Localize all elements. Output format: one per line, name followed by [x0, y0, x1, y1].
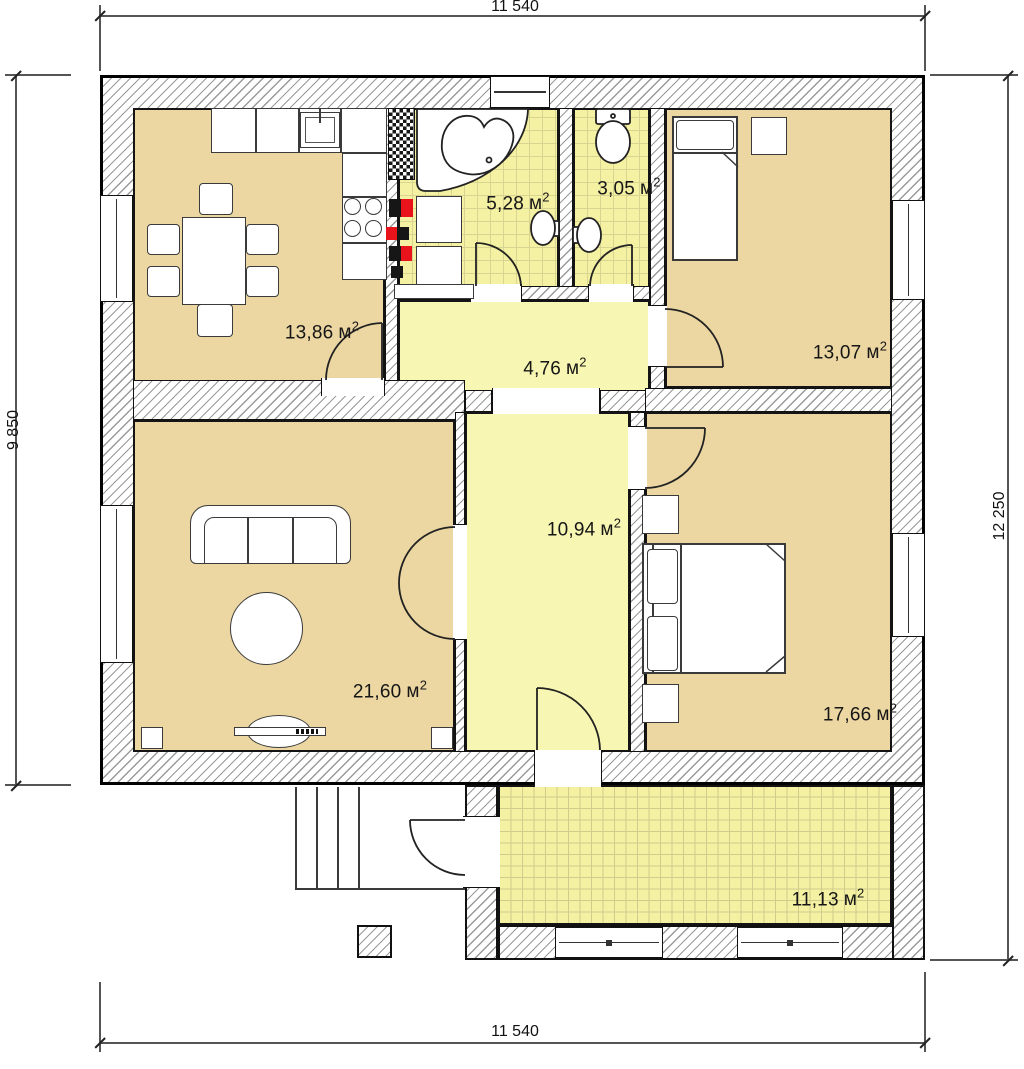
- dining-chair-right-1: [246, 224, 279, 255]
- wall-hallway-stub-left: [465, 390, 492, 412]
- duct-block-7: [391, 266, 403, 278]
- opening-entrance-door: [463, 816, 500, 888]
- area-unit: м2: [866, 342, 887, 363]
- kitchen-counter-right-divider-2: [343, 242, 386, 244]
- area-value: 11,13: [792, 889, 839, 910]
- opening-bedroom-2-door: [648, 305, 667, 367]
- entrance-door-arc: [410, 820, 465, 875]
- kitchen-counter-right: [342, 153, 387, 280]
- area-value: 17,66: [823, 704, 872, 725]
- room-area-label-wc: 3,05м2: [569, 175, 689, 200]
- duct-block-5: [389, 246, 401, 261]
- window-bedroom-2: [892, 200, 925, 300]
- sofa-cushion-divider-1: [247, 518, 249, 563]
- bathroom-cabinet: [416, 246, 462, 289]
- dimension-right-ext-top: [930, 74, 1018, 76]
- opening-corridor-exit: [534, 750, 602, 787]
- wall-kitchen-living: [133, 380, 465, 420]
- opening-kitchen-door: [321, 378, 385, 396]
- bedroom-1-pillow-top: [647, 549, 678, 604]
- area-value: 21,60: [353, 681, 402, 702]
- dining-chair-top: [199, 183, 233, 215]
- porch-step-line-2: [316, 787, 318, 888]
- kitchen-counter-divider-1: [255, 109, 257, 152]
- wall-bedroom-2-bedroom-1: [645, 388, 892, 412]
- area-value: 13,07: [813, 342, 862, 363]
- area-unit: м2: [600, 519, 621, 540]
- stove-burner-4: [365, 220, 382, 237]
- kitchen-faucet: [319, 109, 321, 123]
- window-living: [100, 505, 133, 663]
- dining-table: [182, 217, 246, 305]
- dining-chair-left-1: [147, 224, 180, 255]
- bedroom-1-pillow-bottom: [647, 616, 678, 671]
- dimension-bottom-label: 11 540: [440, 1023, 590, 1041]
- window-bathroom-top: [490, 76, 550, 108]
- sofa-cushion-divider-2: [292, 518, 294, 563]
- area-unit: м2: [876, 704, 897, 725]
- bedroom-2-nightstand: [751, 117, 787, 155]
- dining-chair-left-2: [147, 266, 180, 297]
- room-area-label-bathroom: 5,28м2: [458, 190, 578, 215]
- area-value: 3,05: [597, 178, 635, 199]
- porch-step-line-4: [358, 787, 360, 888]
- stove-burner-1: [344, 198, 361, 215]
- duct-block-1: [389, 199, 401, 217]
- window-terrace-1: [555, 927, 663, 958]
- opening-hallway-corridor: [492, 388, 600, 414]
- porch-column: [357, 925, 392, 958]
- dimension-left-label: 9 850: [5, 395, 21, 465]
- room-area-label-living-room: 21,60м2: [330, 678, 450, 703]
- stove-burner-3: [344, 220, 361, 237]
- room-area-label-bedroom-1: 17,66м2: [800, 701, 920, 726]
- area-value: 4,76: [523, 358, 561, 379]
- kitchen-counter-divider-3: [340, 109, 342, 152]
- stove-burner-2: [365, 198, 382, 215]
- room-corridor-floor: [465, 412, 630, 752]
- area-value: 5,28: [486, 193, 524, 214]
- bedroom-1-nightstand-bottom: [642, 684, 679, 723]
- area-value: 10,94: [547, 519, 596, 540]
- window-bedroom-1: [892, 533, 925, 637]
- coffee-table: [230, 592, 303, 665]
- room-area-label-kitchen: 13,86м2: [262, 319, 382, 344]
- room-area-label-terrace: 11,13м2: [768, 886, 888, 911]
- tv-controls: [296, 729, 318, 734]
- area-unit: м2: [338, 322, 359, 343]
- area-unit: м2: [529, 193, 550, 214]
- sofa-seat: [204, 517, 337, 564]
- area-value: 13,86: [285, 322, 334, 343]
- room-area-label-hallway: 4,76м2: [495, 355, 615, 380]
- duct-block-3: [386, 227, 397, 240]
- dimension-bottom-line: [100, 1042, 926, 1044]
- terrace-right-wall: [892, 785, 925, 960]
- porch-step-line-1: [295, 787, 297, 888]
- opening-bathroom-door: [470, 284, 522, 302]
- dining-chair-right-2: [246, 266, 279, 297]
- vent-shaft: [388, 108, 415, 180]
- washing-machine: [416, 196, 462, 243]
- duct-block-2: [401, 199, 413, 217]
- area-unit: м2: [566, 358, 587, 379]
- opening-wc-door: [588, 284, 634, 302]
- room-area-label-bedroom-2: 13,07м2: [790, 339, 910, 364]
- opening-living-double-door: [453, 524, 467, 640]
- area-unit: м2: [406, 681, 427, 702]
- hallway-closet: [394, 284, 474, 299]
- room-area-label-corridor: 10,94м2: [524, 516, 644, 541]
- bedroom-1-nightstand-top: [642, 495, 679, 534]
- duct-block-4: [397, 227, 409, 240]
- duct-block-6: [401, 246, 412, 261]
- living-corner-unit-left: [141, 727, 163, 749]
- bedroom-2-pillow: [676, 120, 734, 150]
- dining-chair-bottom: [197, 304, 233, 337]
- dimension-top-label: 11 540: [440, 0, 590, 16]
- window-terrace-2: [737, 927, 843, 958]
- porch-edge-line: [295, 888, 465, 890]
- porch-step-line-3: [337, 787, 339, 888]
- area-unit: м2: [640, 178, 661, 199]
- dimension-right-label: 12 250: [991, 481, 1007, 551]
- bedroom-1-blanket-line: [680, 544, 682, 673]
- opening-bedroom-1-door: [628, 426, 647, 490]
- area-unit: м2: [844, 889, 865, 910]
- dimension-right-ext-bottom: [930, 959, 1018, 961]
- bedroom-2-blanket-line: [672, 152, 738, 154]
- floor-plan-canvas: 11 540 11 540 9 850 12 250: [0, 0, 1024, 1069]
- window-kitchen: [100, 195, 133, 302]
- living-corner-unit-right: [431, 727, 453, 749]
